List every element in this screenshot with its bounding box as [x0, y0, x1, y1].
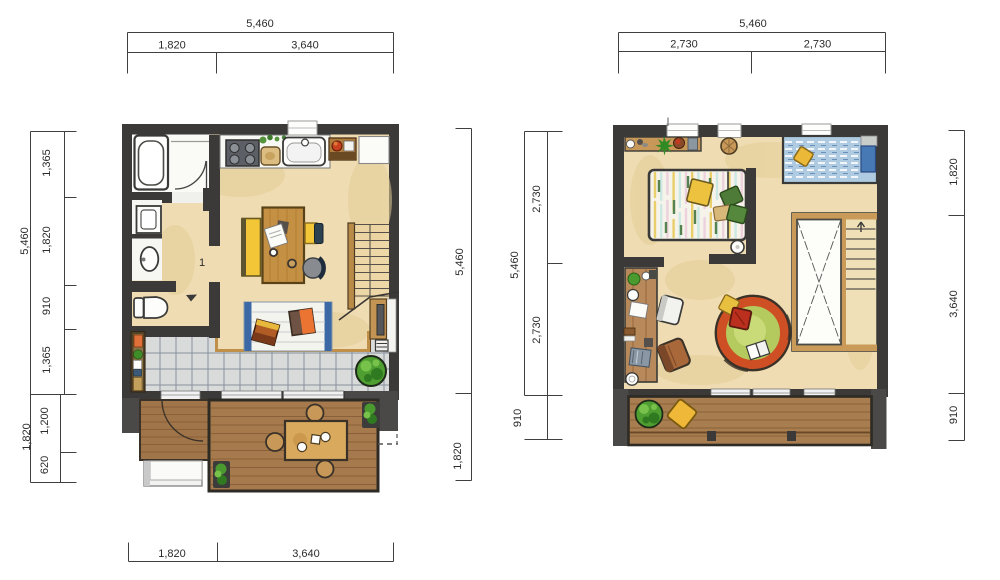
- svg-text:5,460: 5,460: [19, 227, 31, 255]
- svg-text:1,365: 1,365: [41, 149, 53, 177]
- svg-text:1,820: 1,820: [41, 226, 53, 254]
- svg-text:1,820: 1,820: [452, 442, 464, 470]
- svg-text:1: 1: [199, 257, 205, 269]
- svg-text:3,640: 3,640: [948, 290, 960, 318]
- svg-text:5,460: 5,460: [454, 248, 466, 276]
- svg-text:1,820: 1,820: [158, 40, 186, 52]
- svg-text:910: 910: [41, 297, 53, 315]
- svg-text:1,200: 1,200: [39, 407, 51, 435]
- svg-text:1,820: 1,820: [158, 548, 186, 560]
- svg-text:3,640: 3,640: [292, 548, 320, 560]
- svg-text:2,730: 2,730: [531, 185, 543, 213]
- svg-text:910: 910: [948, 406, 960, 424]
- svg-text:620: 620: [39, 456, 51, 474]
- svg-text:5,460: 5,460: [509, 251, 521, 279]
- svg-text:2,730: 2,730: [804, 39, 832, 51]
- svg-text:3,640: 3,640: [291, 40, 319, 52]
- svg-text:1,820: 1,820: [21, 423, 33, 451]
- svg-text:2,730: 2,730: [670, 39, 698, 51]
- svg-text:2,730: 2,730: [531, 316, 543, 344]
- svg-text:1,820: 1,820: [948, 158, 960, 186]
- svg-text:5,460: 5,460: [246, 18, 274, 30]
- svg-text:1,365: 1,365: [41, 346, 53, 374]
- svg-text:910: 910: [512, 409, 524, 427]
- svg-text:5,460: 5,460: [739, 18, 767, 30]
